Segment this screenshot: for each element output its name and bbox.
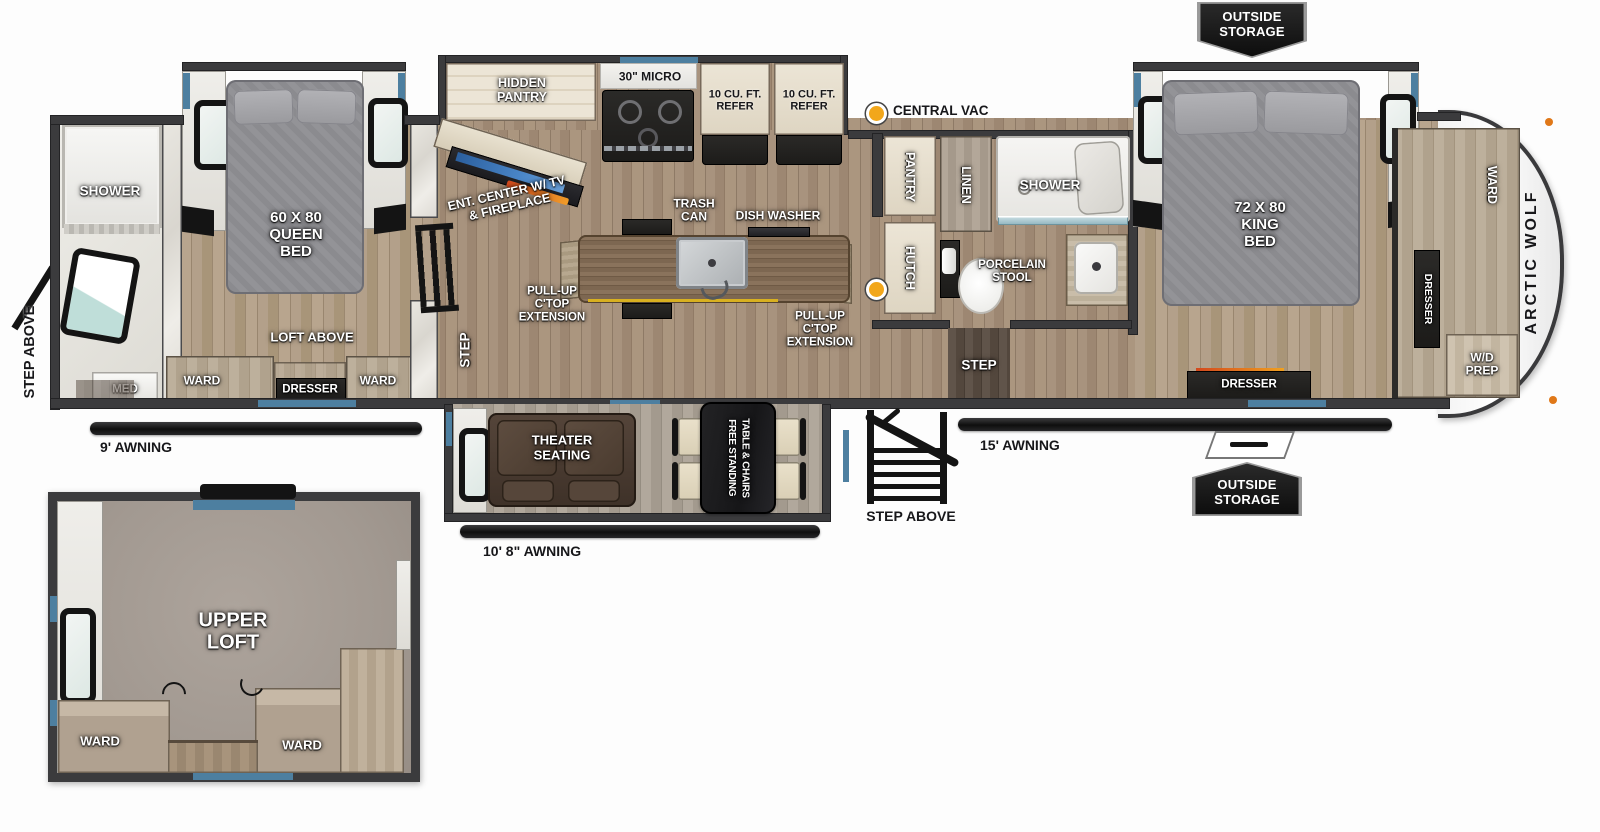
awning-front-bar [958, 418, 1392, 431]
floorplan-diagram: SHOWER MED STEP ABOVE 60 X 80 QUEEN BED … [0, 0, 1600, 832]
dining-chair-3-back [800, 418, 806, 456]
dining-chair-4-back [800, 462, 806, 500]
king-pillow-right [1263, 91, 1348, 136]
queen-pillow-right [296, 89, 356, 125]
entry-accent [843, 430, 849, 482]
queen-right-wall-upper [410, 122, 438, 218]
rear-shower-ledge [64, 224, 160, 234]
loft-window-accent-top [50, 596, 57, 622]
queen-dresser-label: DRESSER [282, 384, 338, 397]
step-above-entry-label: STEP ABOVE [866, 509, 955, 525]
linen-label: LINEN [959, 166, 973, 204]
step-above-rear-label: STEP ABOVE [22, 306, 38, 399]
queen-right-wall-lower [410, 300, 438, 400]
refer-left-label: 10 CU. FT. REFER [709, 89, 762, 114]
queen-slide-bracket-left [182, 206, 214, 236]
marker-light-top [1545, 118, 1553, 126]
loft-stair-panel [340, 648, 404, 773]
queen-slide-bracket-right [374, 204, 406, 234]
king-slide-top-wall [1133, 62, 1419, 71]
dishwasher-icon [748, 227, 810, 237]
queen-pillow-left [233, 89, 293, 125]
loft-window [60, 608, 96, 704]
loft-window-accent-bottom [50, 700, 57, 726]
refer-right-label: 10 CU. FT. REFER [783, 89, 836, 114]
loft-above-label: LOFT ABOVE [270, 331, 353, 346]
queen-ward-right-label: WARD [360, 374, 397, 387]
sink-drain [708, 259, 716, 267]
porcelain-stool-label: PORCELAIN STOOL [978, 259, 1046, 285]
living-slide-accent [446, 412, 452, 446]
stove [602, 90, 694, 162]
dining-chair-1-back [672, 418, 678, 456]
hutch-label: HUTCH [903, 246, 917, 290]
queen-bed-label: 60 X 80 QUEEN BED [269, 210, 322, 260]
stove-burner-2 [658, 100, 682, 124]
awning-rear-bar [90, 422, 422, 435]
upper-loft-label: UPPER LOFT [199, 610, 268, 655]
mid-bath-left-wall [872, 133, 883, 217]
rear-wall [50, 115, 60, 410]
hidden-pantry-label: HIDDEN PANTRY [497, 76, 547, 104]
king-dresser-bottom-label: DRESSER [1221, 379, 1277, 392]
king-bed-label: 72 X 80 KING BED [1234, 200, 1286, 250]
loft-roof-hatch [200, 484, 296, 499]
queen-slide-accent-left [183, 73, 190, 109]
loft-ward-left-label: WARD [80, 735, 120, 750]
vanity-faucet [1092, 262, 1101, 271]
central-vac-label: CENTRAL VAC [893, 103, 989, 118]
brand-label: ARCTIC WOLF [1523, 190, 1541, 335]
mid-step-label: STEP [961, 357, 996, 372]
loft-ward-right-label: WARD [282, 739, 322, 754]
top-wall-mid [404, 115, 440, 125]
shower-glass-edge [998, 216, 1128, 225]
king-dresser-side-label: DRESSER [1421, 274, 1433, 325]
wd-prep-label: W/D PREP [1466, 352, 1499, 379]
dining-table-label: FREE STANDING TABLE & CHAIRS [725, 418, 752, 498]
trash-can-icon [622, 219, 672, 235]
queen-ward-left-label: WARD [184, 374, 221, 387]
trash-can-label: TRASH CAN [673, 198, 714, 225]
mid-shower-label: SHOWER [1020, 177, 1081, 192]
toilet-roll [942, 248, 956, 274]
pullup-left-label: PULL-UP C'TOP EXTENSION [519, 286, 585, 325]
outside-storage-bottom-label: OUTSIDE STORAGE [1214, 478, 1279, 508]
stove-rail [604, 146, 692, 151]
queen-window-right [368, 98, 408, 168]
stove-burner-3 [638, 128, 658, 148]
refer-right-front [776, 135, 842, 165]
vac-outlet-icon [866, 279, 887, 300]
outside-storage-bottom-badge: OUTSIDE STORAGE [1192, 462, 1302, 516]
theater-seating-label: THEATER SEATING [532, 433, 592, 462]
bath-pantry-label: PANTRY [903, 152, 917, 202]
top-wall-rear [50, 115, 184, 125]
mid-bath-bottom-wall-left [872, 320, 950, 329]
island-accent-strip [588, 299, 778, 302]
central-vac-icon [866, 103, 887, 124]
theater-footrest-left [502, 480, 554, 502]
rear-shower [62, 124, 162, 228]
rear-steps [76, 380, 134, 400]
loft-hatch-accent [193, 500, 295, 510]
queen-slide-top-wall [182, 62, 406, 71]
refer-left-front [702, 135, 768, 165]
awning-door-label: 10' 8" AWNING [483, 544, 581, 560]
outside-storage-top-label: OUTSIDE STORAGE [1219, 10, 1284, 40]
king-slide-bracket-left [1133, 200, 1163, 230]
dining-chair-2-back [672, 462, 678, 500]
entry-door-handle [1230, 442, 1268, 447]
theater-footrest-right [568, 480, 620, 502]
loft-ladder-icon [415, 223, 459, 313]
loft-right-wall [396, 560, 411, 650]
queen-step-label: STEP [457, 332, 472, 367]
awning-rear-label: 9' AWNING [100, 440, 172, 456]
awning-door-bar [460, 525, 820, 538]
king-ward-label: WARD [1485, 166, 1499, 204]
living-slide-bottom-wall [444, 513, 831, 522]
king-pillow-left [1173, 91, 1258, 136]
marker-light-bottom [1549, 396, 1557, 404]
top-wall-front [1417, 112, 1461, 121]
bottom-accent-queen [258, 400, 356, 407]
micro-label: 30" MICRO [619, 70, 681, 83]
king-cabinet-divider [1392, 128, 1398, 398]
outside-storage-top-badge: OUTSIDE STORAGE [1197, 2, 1307, 58]
stove-burner-1 [618, 100, 642, 124]
mid-shower-seat [1074, 140, 1125, 215]
rear-shower-label: SHOWER [80, 183, 141, 198]
mid-bath-bottom-wall-right [1010, 320, 1132, 329]
awning-front-label: 15' AWNING [980, 438, 1060, 454]
loft-ledge [168, 740, 258, 773]
island-stool-icon [622, 303, 672, 319]
dish-washer-label: DISH WASHER [736, 209, 821, 222]
living-slide-right-wall [822, 404, 831, 522]
entry-stair-steps [874, 448, 940, 504]
living-window [459, 428, 491, 502]
bottom-accent-king [1248, 400, 1326, 407]
pullup-right-label: PULL-UP C'TOP EXTENSION [787, 311, 853, 350]
